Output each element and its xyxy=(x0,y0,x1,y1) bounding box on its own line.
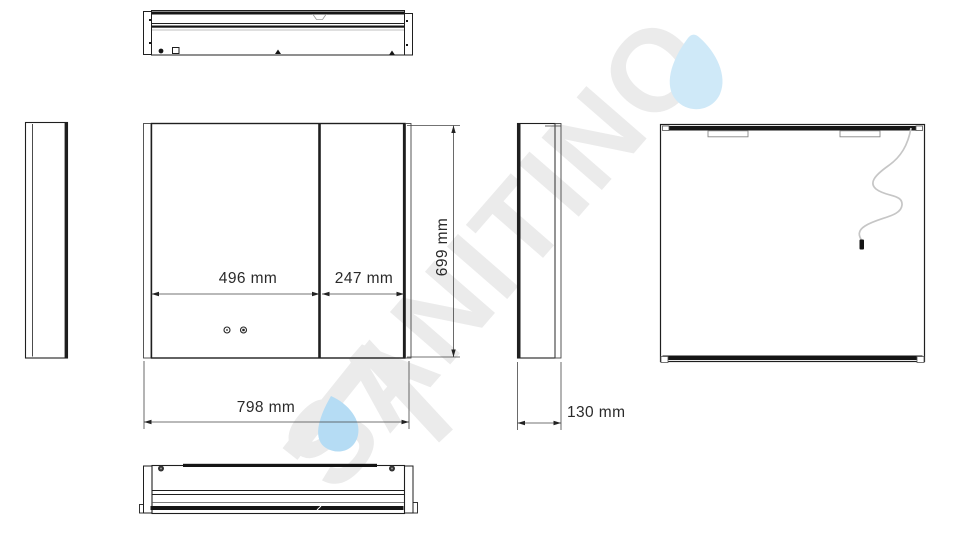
front-view xyxy=(144,124,412,359)
back-corner-tab xyxy=(917,357,924,363)
led-strip xyxy=(151,506,404,510)
back-corner-tab xyxy=(661,357,668,363)
top-view-body xyxy=(152,11,405,56)
technical-drawing-page: SANITINO xyxy=(0,0,960,534)
back-corner-tab xyxy=(663,126,670,131)
top-view-left-cap xyxy=(144,12,152,55)
side-depth-dimension xyxy=(518,362,562,430)
cable-plug-icon xyxy=(860,240,865,250)
front-right-panel xyxy=(406,124,412,359)
top-view-hinge-mark xyxy=(159,49,164,54)
back-view xyxy=(661,125,925,363)
mounting-bracket xyxy=(708,131,748,137)
dim-label-front-total-width: 798 mm xyxy=(216,399,316,417)
bottom-view-left-cap xyxy=(144,466,153,513)
top-view-notch xyxy=(313,15,326,20)
side-depth-view xyxy=(518,124,562,359)
front-body xyxy=(152,124,406,359)
power-cable xyxy=(859,128,911,240)
top-view-tick-mark xyxy=(389,51,395,56)
mounting-bracket xyxy=(840,131,880,137)
dim-label-front-width-left: 496 mm xyxy=(198,270,298,288)
bottom-view xyxy=(140,464,418,514)
back-corner-tab xyxy=(916,126,923,131)
dim-label-front-height: 699 mm xyxy=(434,197,452,297)
dim-label-side-depth: 130 mm xyxy=(567,404,625,422)
front-left-panel xyxy=(144,124,152,359)
top-view-clip-mark xyxy=(173,48,180,54)
top-view-tick-mark xyxy=(275,50,281,55)
cabinet-drawing xyxy=(0,0,960,534)
left-side-view xyxy=(26,123,68,359)
back-body xyxy=(661,125,925,362)
bottom-view-right-cap xyxy=(405,466,414,513)
dim-label-front-width-right: 247 mm xyxy=(314,270,414,288)
top-view-right-cap xyxy=(405,14,413,56)
top-view xyxy=(144,11,413,56)
